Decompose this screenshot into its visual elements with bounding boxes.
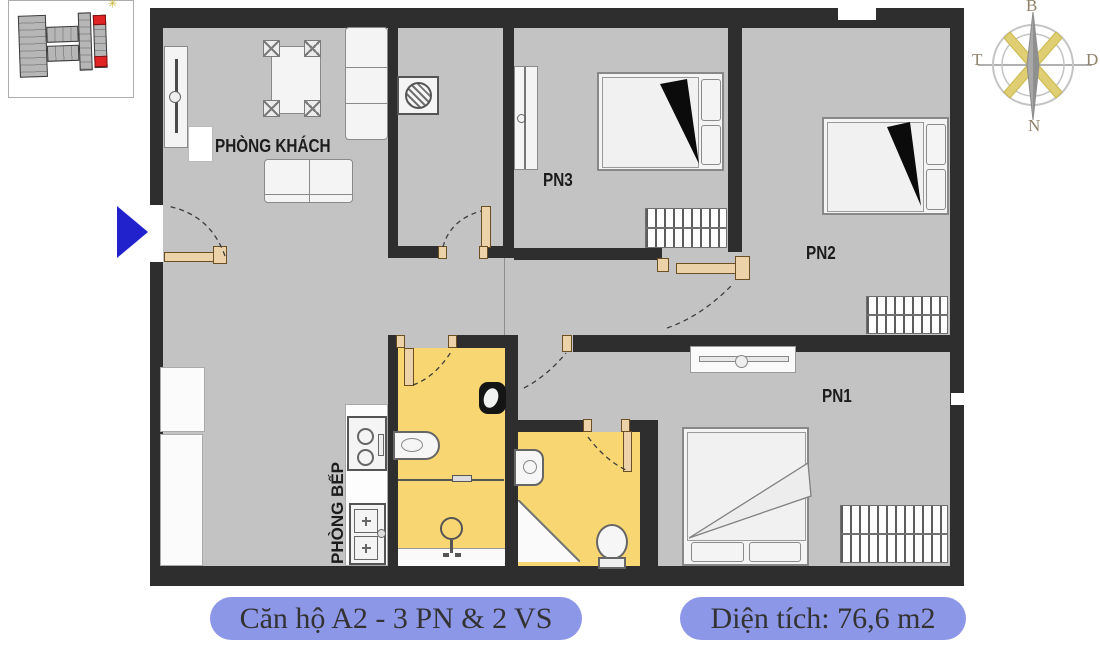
toilet-bowl [596,524,628,560]
pillow [701,79,721,121]
kitchen-cabinet-upper [160,367,205,432]
sofa-cushion-line [309,160,310,202]
wall-laundry-bottom-left [388,246,444,258]
sofa-cushion-line [346,103,387,104]
highlighted-unit-top [93,15,106,25]
pn3-wardrobe-hatch [645,208,727,248]
wall-living-laundry [388,28,398,258]
entrance-arrow [117,206,148,258]
sink-bowl [354,509,378,533]
pn1-wall-niche [690,346,796,373]
wall-wc1-top-right [452,335,505,348]
living-room-label: PHÒNG KHÁCH [215,136,331,157]
sink-wc2 [514,449,544,486]
key-plan-bottom-bar [47,45,80,62]
pillow [701,125,721,165]
apartment-name-caption: Căn hộ A2 - 3 PN & 2 VS [210,597,582,640]
key-plan-building: ✳ [7,0,134,99]
wc2-door-jamb [583,419,592,432]
laundry-door-panel [481,206,491,248]
mattress [687,432,806,541]
tv-stand [188,126,213,162]
hall-door-panel [676,263,738,274]
pillow [926,124,946,165]
wall-pn3-pn2 [728,28,742,252]
sink-basin [523,460,537,474]
pn2-bed [822,117,949,215]
shower-foot [455,553,461,557]
wc1-door-panel [404,348,414,386]
wc2-door-jamb [621,419,630,432]
kitchen-cabinet-lower [160,434,203,566]
washing-machine-drum [405,82,432,109]
compass-east-label: D [1086,50,1098,70]
laundry-door-jamb [479,246,488,259]
wall-right [950,8,964,586]
wc1-door-jamb [448,335,457,348]
wall-right-gap [951,393,964,405]
niche-knob [735,355,748,368]
pillow [749,542,801,562]
dining-chair [304,40,321,57]
kitchen-sink [349,503,386,565]
area-caption: Diện tích: 76,6 m2 [680,597,966,640]
pn1-door-jamb [562,335,572,352]
stove-burner [357,449,374,466]
pillow [926,169,946,210]
dining-chair [263,40,280,57]
compass-south-label: N [1028,116,1040,136]
shower-foot [443,553,449,557]
building-key-plan: ✳ [8,0,134,98]
dining-chair [304,100,321,117]
pn3-wardrobe [514,66,538,170]
highlighted-unit-bottom [94,56,107,67]
wall-top-gap [838,8,876,20]
key-plan-compass-icon: ✳ [107,0,118,11]
toilet-wc2 [596,524,628,572]
sofa-cushion-line [346,67,387,68]
stove [347,416,387,471]
stove-control-panel [378,434,384,456]
mattress [602,77,699,168]
living-window [164,46,188,148]
bedroom1-label: PN1 [822,386,852,407]
pn1-bed [682,427,809,566]
compass-north-label: B [1026,0,1037,16]
wall-left-upper [150,8,163,205]
wall-wc2-top [505,420,585,432]
key-plan-right-wing [78,12,93,70]
sink-bowl [354,536,378,560]
hall-door-hinge [735,256,750,280]
wall-laundry-pn3 [503,28,514,258]
shower-partition-wc1 [398,479,504,481]
sink-wc1 [393,431,440,460]
sofa-back-line [265,194,352,195]
wall-pn3-bottom [514,248,662,260]
pn3-bed [597,72,724,171]
bedroom2-label: PN2 [806,243,836,264]
hall-door-jamb [657,258,669,272]
sofa-large [345,27,388,140]
sink-basin [401,438,423,452]
mattress [827,122,924,212]
washing-machine [397,76,439,115]
faucet [377,529,386,538]
pn2-wardrobe-hatch [866,296,948,334]
shower-tray-wc2 [518,500,580,562]
compass-west-label: T [972,50,982,70]
wc2-door-panel [623,431,632,472]
key-plan-left-wing [18,15,48,78]
floor-plan-page: ✳ B T D N [0,0,1100,650]
shower-stem-wc1 [450,540,453,553]
toilet-wc1 [479,382,506,414]
bedroom3-label: PN3 [543,170,573,191]
wardrobe-handle [517,114,526,123]
entrance-door-jamb [213,246,227,264]
window-handle [169,91,181,103]
laundry-door-jamb [438,246,447,259]
toilet-tank [598,557,626,569]
stove-burner [357,428,374,445]
toilet-bowl [481,386,500,409]
partition-handle-wc1 [452,475,472,482]
wall-bottom [150,566,964,586]
compass-rose: B T D N [970,0,1100,135]
compass-rose-icon [970,0,1100,135]
pillow [691,542,744,562]
pn1-wardrobe-hatch [840,505,948,563]
wall-wc2-right [640,420,658,566]
kitchen-label: PHÒNG BẾP [328,424,348,564]
sofa-small [264,159,353,203]
dining-chair [263,100,280,117]
shower-head-wc1 [440,517,463,540]
key-plan-top-bar [46,26,79,43]
wc1-door-jamb [396,335,405,348]
